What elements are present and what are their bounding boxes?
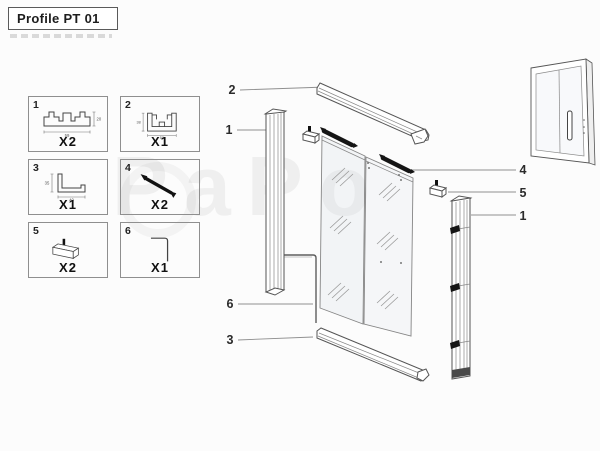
- part-quantity: X2: [29, 260, 107, 275]
- right-wall-profile: [450, 196, 471, 379]
- callout-bottom-rail: 3: [227, 333, 234, 347]
- part-box-6: 6 X1: [120, 222, 200, 278]
- glass-panel-left: [320, 136, 365, 324]
- callout-guide-block: 5: [520, 186, 527, 200]
- assembly-drawing-page: Profile PT 01 PaPo 1 59 20 X2 2 38 50: [0, 0, 600, 451]
- page-title: Profile PT 01: [17, 11, 100, 26]
- part-quantity: X1: [29, 197, 107, 212]
- callout-corner-seal: 6: [227, 297, 234, 311]
- part-box-1: 1 59 20 X2: [28, 96, 108, 152]
- title-box: Profile PT 01: [8, 7, 118, 30]
- callout-right-profile: 1: [520, 209, 527, 223]
- dim-height: 35: [45, 181, 50, 186]
- bottom-rail: [317, 328, 429, 381]
- part-box-3: 3 35 40 X1: [28, 159, 108, 215]
- guide-block-left: [303, 126, 319, 143]
- callout-top-rail: 2: [229, 83, 236, 97]
- part-box-2: 2 38 50 X1: [120, 96, 200, 152]
- part-quantity: X2: [29, 134, 107, 149]
- assembled-door-thumbnail: [531, 59, 595, 165]
- callout-left-profile: 1: [226, 123, 233, 137]
- part-quantity: X2: [121, 197, 199, 212]
- redacted-subtitle: [10, 34, 112, 38]
- door-handle: [568, 111, 573, 140]
- dim-height: 20: [97, 117, 102, 122]
- left-wall-profile: [265, 109, 286, 295]
- part-quantity: X1: [121, 260, 199, 275]
- part-box-5: 5 X2: [28, 222, 108, 278]
- part-box-4: 4 X2: [120, 159, 200, 215]
- glass-panel-right: [364, 157, 413, 336]
- part-quantity: X1: [121, 134, 199, 149]
- callout-roller-bar: 4: [520, 163, 527, 177]
- corner-seal-rod: [283, 255, 316, 323]
- guide-block-right: [430, 180, 446, 197]
- dim-height: 38: [137, 120, 141, 124]
